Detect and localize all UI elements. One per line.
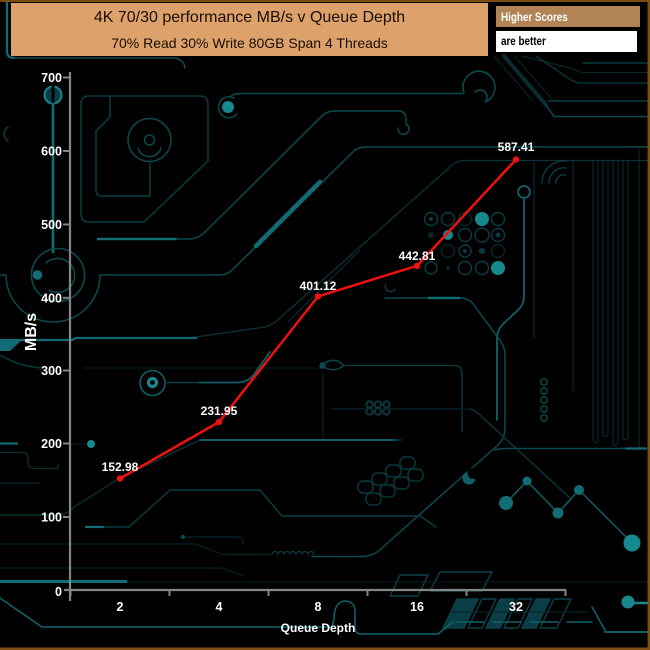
svg-text:500: 500	[41, 218, 62, 232]
svg-text:442.81: 442.81	[399, 249, 436, 263]
svg-text:587.41: 587.41	[498, 140, 535, 154]
svg-text:2: 2	[117, 600, 124, 614]
svg-text:401.12: 401.12	[300, 279, 337, 293]
svg-text:600: 600	[41, 145, 62, 159]
svg-text:MB/s: MB/s	[23, 313, 40, 351]
svg-text:300: 300	[41, 364, 62, 378]
svg-text:200: 200	[41, 437, 62, 451]
svg-text:100: 100	[41, 511, 62, 525]
svg-text:400: 400	[41, 291, 62, 305]
svg-text:8: 8	[315, 600, 322, 614]
svg-text:231.95: 231.95	[201, 404, 238, 418]
svg-text:700: 700	[41, 71, 62, 85]
svg-text:0: 0	[55, 585, 62, 599]
svg-text:32: 32	[509, 600, 523, 614]
svg-text:152.98: 152.98	[102, 460, 139, 474]
svg-text:Queue Depth: Queue Depth	[281, 621, 356, 635]
svg-text:4: 4	[216, 600, 223, 614]
svg-text:16: 16	[410, 600, 424, 614]
